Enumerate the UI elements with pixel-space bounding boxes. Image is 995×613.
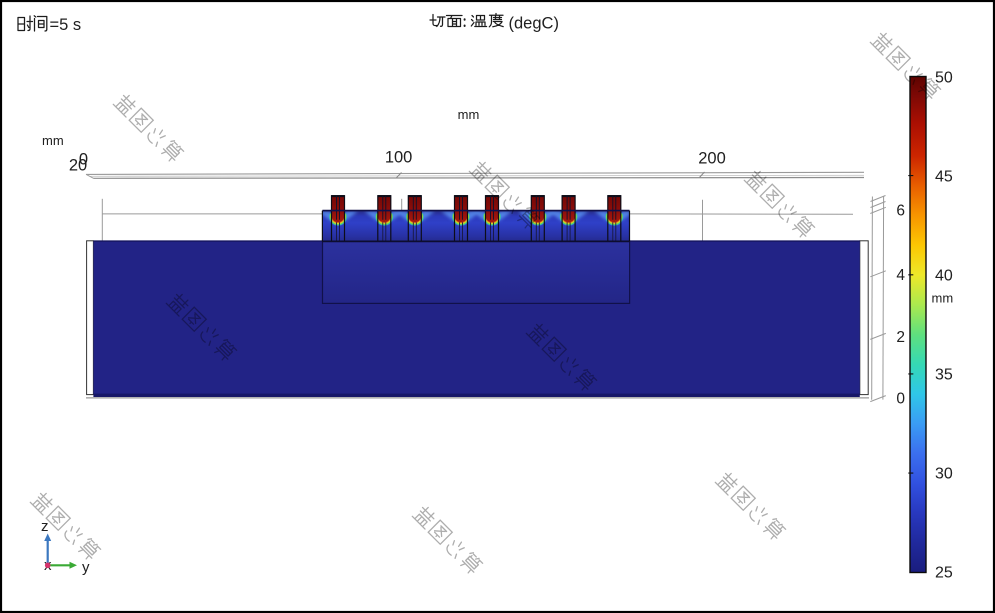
- svg-text:=5 s: =5 s: [50, 16, 82, 34]
- svg-text:mm: mm: [42, 133, 64, 148]
- svg-text:200: 200: [698, 150, 726, 168]
- svg-text:6: 6: [896, 203, 905, 220]
- svg-text:mm: mm: [458, 107, 480, 122]
- svg-text:40: 40: [935, 268, 953, 285]
- svg-text:4: 4: [896, 267, 905, 284]
- svg-text:y: y: [82, 559, 90, 576]
- svg-text:20: 20: [69, 157, 87, 175]
- svg-text:z: z: [41, 518, 49, 535]
- svg-text:45: 45: [935, 169, 953, 186]
- svg-text:100: 100: [385, 149, 413, 167]
- svg-text:25: 25: [935, 565, 953, 582]
- svg-text:0: 0: [896, 391, 905, 408]
- svg-text:(degC): (degC): [509, 15, 559, 33]
- svg-text:50: 50: [935, 70, 953, 87]
- svg-text:mm: mm: [932, 291, 954, 306]
- svg-text:30: 30: [935, 466, 953, 483]
- svg-text:2: 2: [896, 329, 905, 346]
- svg-text:35: 35: [935, 367, 953, 384]
